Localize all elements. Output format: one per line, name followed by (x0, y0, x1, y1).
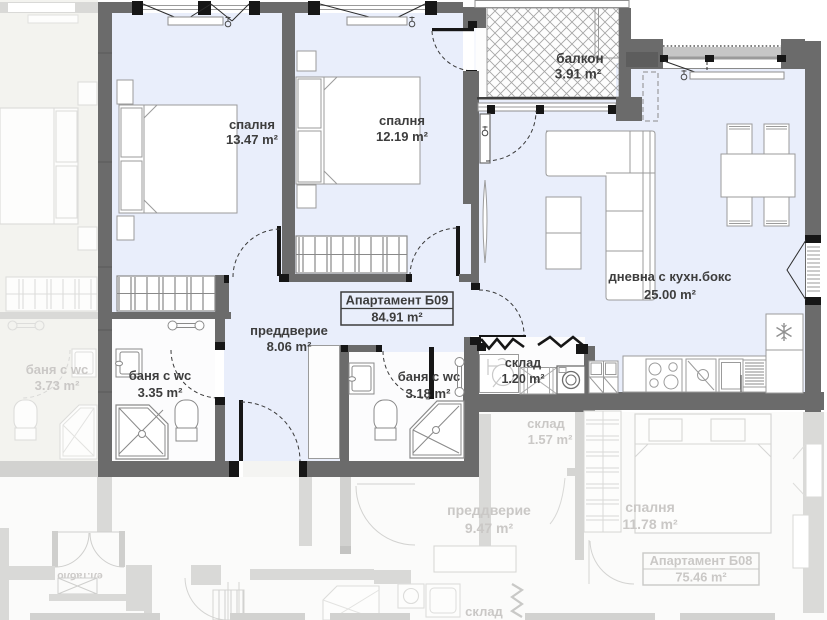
svg-text:3.73 m²: 3.73 m² (35, 378, 80, 393)
svg-text:склад: склад (505, 356, 541, 370)
svg-text:склад: склад (527, 416, 565, 431)
svg-text:спалня: спалня (625, 499, 675, 515)
svg-text:баня с wc: баня с wc (398, 369, 461, 384)
svg-text:8.06 m²: 8.06 m² (267, 339, 312, 354)
svg-text:дневна с кухн.бокс: дневна с кухн.бокс (609, 269, 732, 284)
svg-text:спалня: спалня (229, 117, 275, 132)
svg-text:84.91 m²: 84.91 m² (371, 310, 422, 325)
svg-text:1.20 m²: 1.20 m² (501, 372, 544, 386)
svg-text:12.19 m²: 12.19 m² (376, 129, 429, 144)
svg-text:13.47 m²: 13.47 m² (226, 132, 279, 147)
svg-text:3.18 m²: 3.18 m² (406, 386, 451, 401)
svg-text:3.91 m²: 3.91 m² (555, 67, 602, 82)
svg-text:склад: склад (465, 604, 503, 619)
svg-text:Апартамент Б08: Апартамент Б08 (650, 553, 753, 568)
svg-text:балкон: балкон (556, 51, 603, 66)
svg-text:баня с wc: баня с wc (129, 368, 192, 383)
svg-text:спалня: спалня (379, 113, 425, 128)
svg-text:11.78 m²: 11.78 m² (622, 516, 678, 532)
svg-text:преддверие: преддверие (447, 502, 531, 518)
svg-text:преддверие: преддверие (250, 323, 328, 338)
svg-text:1.57 m²: 1.57 m² (528, 432, 573, 447)
svg-text:25.00 m²: 25.00 m² (644, 287, 697, 302)
svg-text:3.35 m²: 3.35 m² (138, 385, 183, 400)
svg-text:9.47 m²: 9.47 m² (465, 520, 514, 536)
svg-text:Апартамент Б09: Апартамент Б09 (346, 293, 449, 308)
svg-text:75.46 m²: 75.46 m² (675, 570, 726, 585)
svg-text:баня с wc: баня с wc (26, 362, 89, 377)
